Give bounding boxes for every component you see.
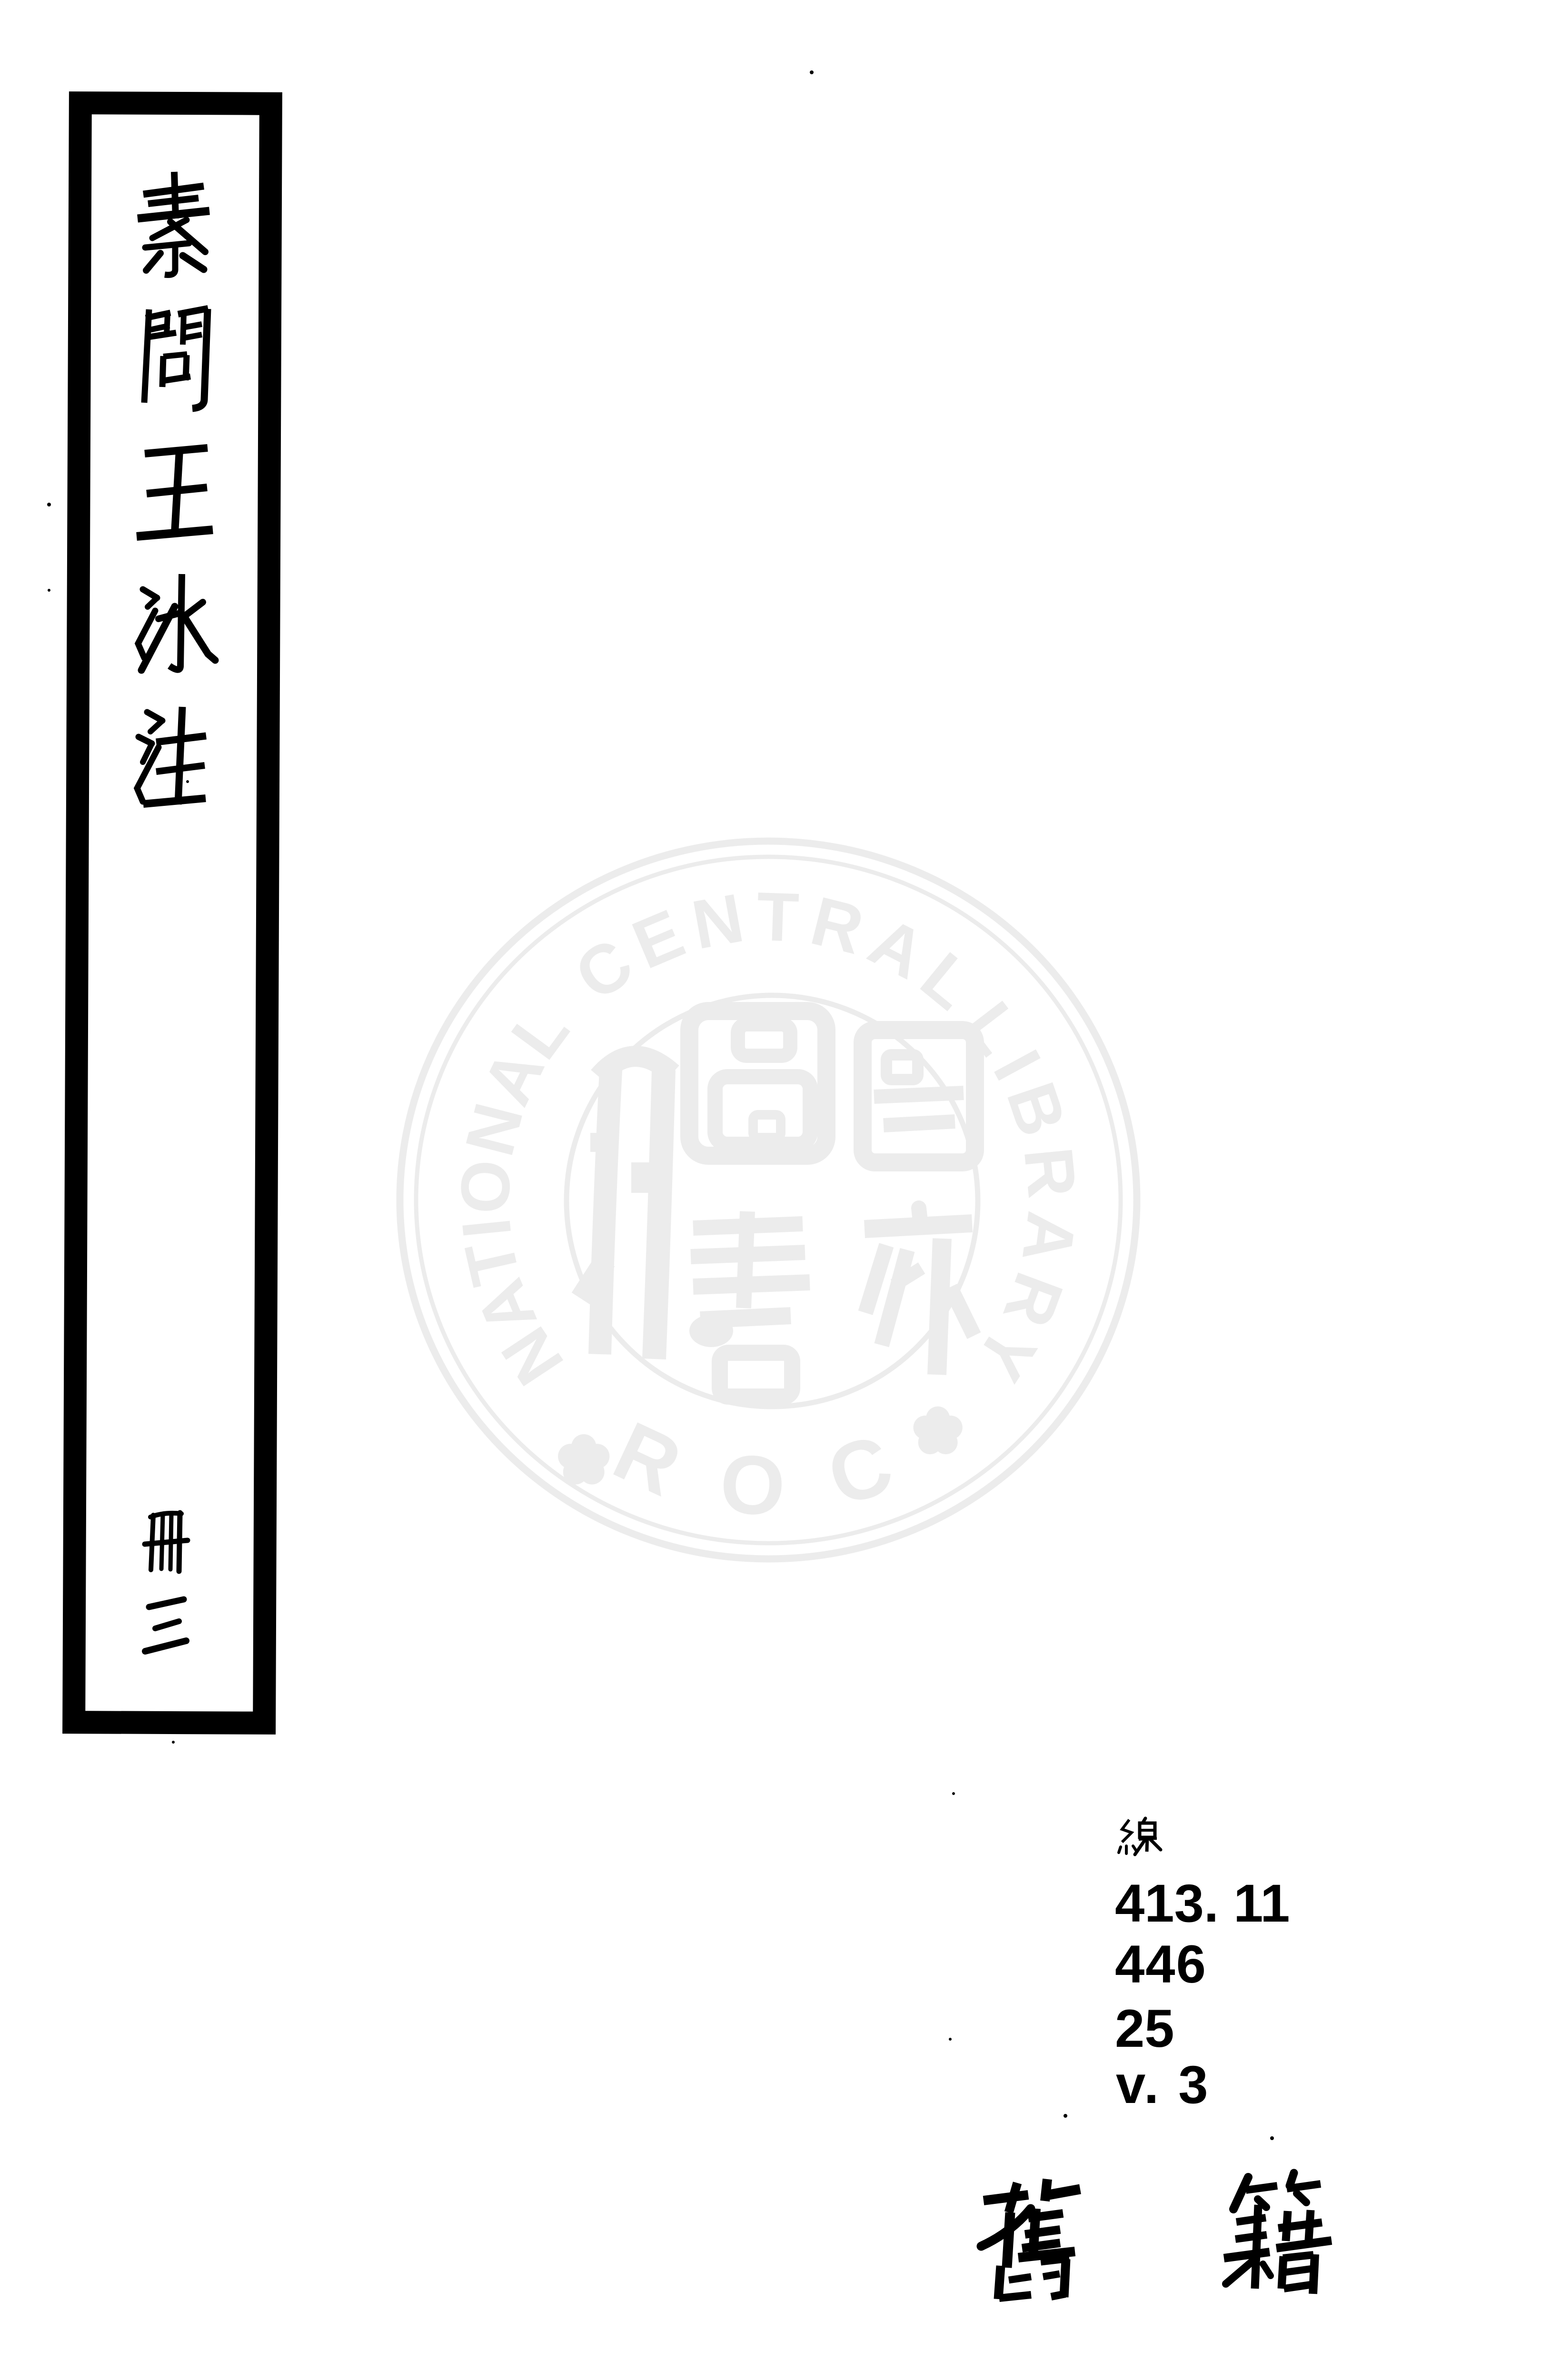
svg-text:446: 446	[1115, 1934, 1207, 1994]
svg-text:413. 11: 413. 11	[1115, 1874, 1290, 1933]
svg-text:v. 3: v. 3	[1116, 2055, 1211, 2114]
svg-text:25: 25	[1115, 1999, 1174, 2058]
